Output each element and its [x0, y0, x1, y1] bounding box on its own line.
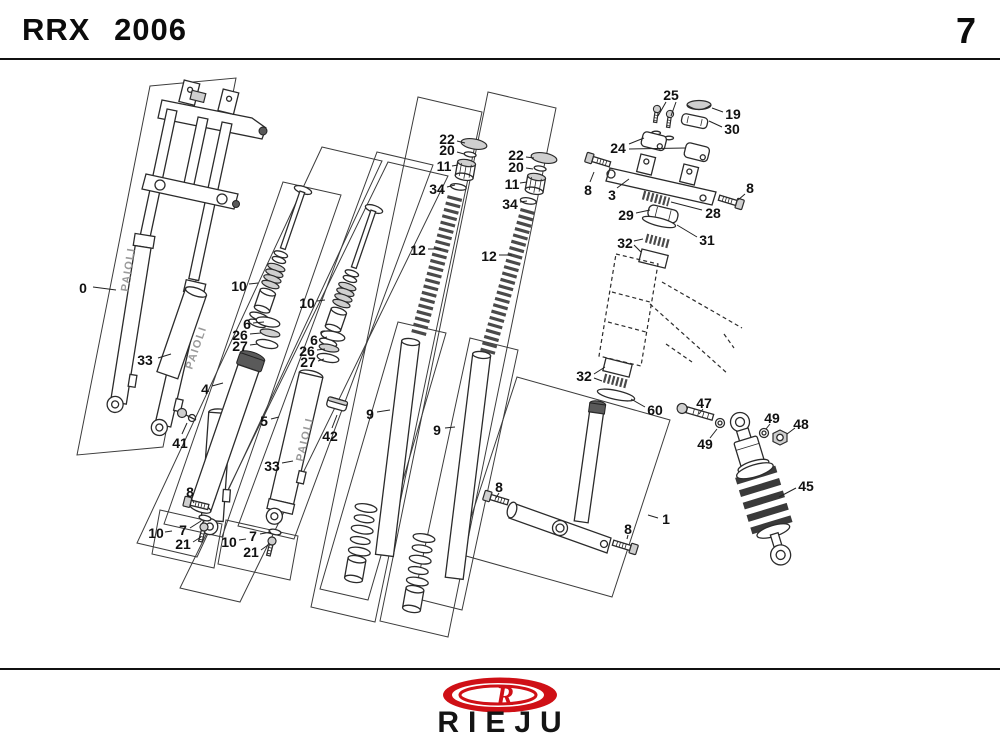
seal-stack-b	[316, 329, 345, 364]
page-header: RRX 2006 7	[0, 0, 1000, 60]
leader-line	[634, 239, 643, 241]
part-label-49-49: 49	[764, 410, 780, 426]
brand-wordmark: RIEJU	[437, 706, 570, 734]
part-label-7-18: 7	[249, 528, 257, 544]
leader-line	[594, 378, 602, 381]
part-label-12-26: 12	[410, 242, 426, 258]
part-label-9-33: 9	[433, 422, 441, 438]
bearing-32-upper	[646, 238, 669, 244]
part-label-30-36: 30	[724, 121, 740, 137]
catalog-page: RRX 2006 7	[0, 0, 1000, 734]
race-32-lower	[603, 358, 632, 377]
leader-line	[165, 531, 172, 532]
leader-line	[377, 410, 390, 412]
leader-line	[93, 287, 116, 290]
bolt-8-clamp-right	[612, 538, 639, 555]
part-label-27-17: 27	[300, 354, 316, 370]
leader-line	[250, 333, 261, 334]
leader-line	[249, 283, 258, 284]
part-label-21-11: 21	[175, 536, 191, 552]
part-label-29-41: 29	[618, 207, 634, 223]
page-footer: R RIEJU	[0, 668, 1000, 734]
bolt-8-top-left	[585, 152, 612, 169]
bearing-28	[643, 195, 669, 202]
leader-line	[250, 344, 258, 345]
part-label-31-43: 31	[699, 232, 715, 248]
part-label-1-52: 1	[662, 511, 670, 527]
part-label-45-51: 45	[798, 478, 814, 494]
part-label-4-3: 4	[201, 381, 209, 397]
part-label-8-54: 8	[624, 521, 632, 537]
part-label-8-39: 8	[584, 182, 592, 198]
seal-stack-a	[255, 315, 280, 350]
fork-spring-b	[487, 150, 558, 354]
cap-19	[687, 101, 711, 110]
part-label-20-28: 20	[508, 159, 524, 175]
part-label-32-45: 32	[576, 368, 592, 384]
leader-line	[445, 427, 455, 428]
page-title: RRX 2006	[22, 12, 187, 48]
part-label-33-12: 33	[264, 458, 280, 474]
part-label-0-0: 0	[79, 280, 87, 296]
leader-line	[709, 121, 722, 127]
part-label-10-10: 10	[148, 525, 164, 541]
part-label-21-20: 21	[243, 544, 259, 560]
clamp-end-cap	[259, 127, 267, 135]
leader-line	[631, 399, 645, 407]
part-label-10-19: 10	[221, 534, 237, 550]
exploded-parts-diagram: PAIOLI PAIOLI PAIOLI	[0, 62, 1000, 662]
lower-clamp-assembly	[483, 400, 639, 555]
steering-stem-1	[573, 400, 606, 523]
steering-stem	[184, 117, 208, 186]
leader-line	[590, 172, 594, 182]
part-label-10-14: 10	[299, 295, 315, 311]
part-label-34-25: 34	[429, 181, 445, 197]
part-label-20-23: 20	[439, 142, 455, 158]
leader-line	[212, 383, 223, 386]
nut-48	[773, 430, 787, 445]
cap-42	[326, 396, 348, 411]
part-label-41-2: 41	[172, 435, 188, 451]
box-fork-assembly	[77, 78, 236, 455]
part-label-11-24: 11	[437, 158, 452, 174]
part-label-49-48: 49	[697, 436, 713, 452]
part-label-10-4: 10	[231, 278, 247, 294]
part-label-32-44: 32	[617, 235, 633, 251]
part-label-11-29: 11	[505, 176, 520, 192]
part-label-48-50: 48	[793, 416, 809, 432]
leader-line	[648, 515, 658, 518]
bar-clamp-cap-24b	[683, 142, 710, 162]
leader-line	[190, 521, 201, 528]
leader-line	[712, 108, 723, 112]
pinch-bolt-41	[178, 409, 197, 422]
part-label-24-37: 24	[610, 140, 626, 156]
part-label-8-40: 8	[746, 180, 754, 196]
bearing-32-lower	[604, 378, 627, 384]
frame-line-hidden-2	[650, 304, 728, 374]
part-label-60-46: 60	[647, 402, 663, 418]
part-label-8-8: 8	[186, 484, 194, 500]
frame-headtube-hidden	[599, 254, 658, 366]
part-label-5-13: 5	[260, 413, 268, 429]
riser-post-b	[680, 164, 699, 185]
part-label-33-1: 33	[137, 352, 153, 368]
handlebar-riser-right	[218, 89, 239, 114]
part-label-8-53: 8	[495, 479, 503, 495]
part-label-27-7: 27	[232, 338, 248, 354]
box-lower-clamp	[459, 377, 670, 597]
leader-line	[634, 245, 641, 252]
part-label-25-34: 25	[663, 87, 679, 103]
leader-line	[629, 148, 685, 149]
bolt-8-top-right	[718, 193, 745, 210]
part-label-47-47: 47	[696, 395, 712, 411]
leader-line	[671, 202, 702, 210]
part-label-42-21: 42	[322, 428, 338, 444]
rubber-30	[681, 113, 709, 129]
frame-line-hidden-1	[662, 282, 742, 328]
part-label-9-32: 9	[366, 406, 374, 422]
washer-49b	[760, 429, 769, 438]
leader-line	[526, 168, 533, 169]
race-32-upper	[639, 249, 668, 268]
brand-logo: R RIEJU	[0, 670, 1000, 734]
leader-line	[677, 225, 697, 237]
part-label-12-31: 12	[481, 248, 497, 264]
rear-shock-assembly	[676, 402, 802, 570]
leader-line	[457, 152, 464, 154]
leader-line	[317, 300, 325, 301]
steering-head-parts	[585, 101, 745, 404]
leader-line	[239, 539, 246, 540]
leader-line	[182, 423, 187, 434]
riser-post-a	[637, 154, 656, 175]
part-label-3-38: 3	[608, 187, 616, 203]
part-label-19-35: 19	[725, 106, 741, 122]
part-label-34-30: 34	[502, 196, 518, 212]
page-number: 7	[956, 10, 976, 52]
washer-49a	[716, 419, 725, 428]
part-label-28-42: 28	[705, 205, 721, 221]
